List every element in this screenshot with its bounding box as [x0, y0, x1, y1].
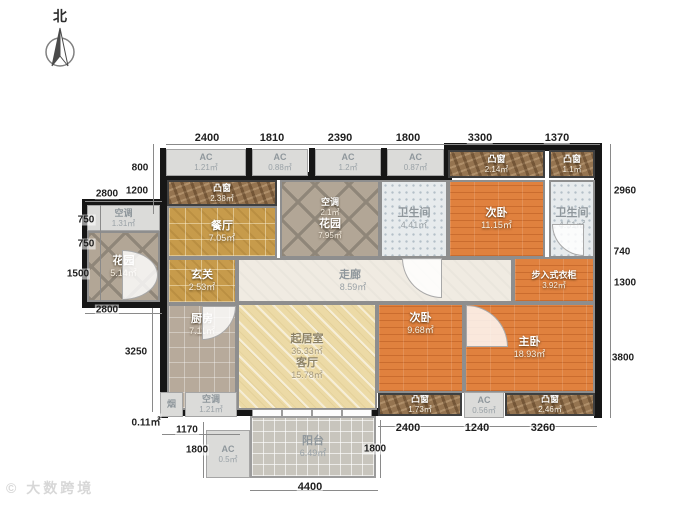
ac-unit-label: AC — [200, 152, 213, 163]
bay-window-label: 凸窗 — [411, 394, 429, 405]
room-closet-area: 3.92㎡ — [542, 281, 566, 291]
room-bedroom-2-area: 9.68㎡ — [407, 325, 434, 336]
dim-bottom-3260: 3260 — [530, 422, 556, 434]
ac-unit-label: AC — [342, 152, 355, 163]
dim-bottom-2400: 2400 — [395, 422, 421, 434]
room-entry: 玄关 2.53㎡ — [167, 258, 237, 304]
ac-unit-area: 1.2㎡ — [338, 163, 357, 173]
dim-left-800: 800 — [131, 163, 150, 174]
ac-unit: AC 0.87㎡ — [387, 149, 444, 176]
room-corridor-area: 8.59㎡ — [340, 282, 367, 293]
ac-unit: AC 0.5㎡ — [206, 430, 250, 478]
bay-window-label: 凸窗 — [541, 394, 559, 405]
bay-window-area: 1.73㎡ — [408, 405, 432, 415]
dim-top-5: 3300 — [467, 132, 493, 144]
bay-window-area: 2.38㎡ — [210, 194, 234, 204]
room-bedroom-2-label: 次卧 — [410, 312, 432, 325]
room-living-label-2: 客厅 — [296, 357, 318, 370]
room-bedroom-1-label: 次卧 — [486, 207, 508, 220]
room-corridor: 走廊 8.59㎡ — [237, 258, 513, 303]
room-garden-top-area: 7.95㎡ — [318, 231, 342, 241]
bay-window-label: 凸窗 — [487, 154, 505, 165]
dimension-line — [162, 434, 240, 435]
room-ac-bottom-label: 空调 — [202, 394, 220, 405]
room-closet: 步入式衣柜 3.92㎡ — [513, 257, 595, 303]
bay-window-label: 凸窗 — [213, 183, 231, 194]
watermark: © 大数跨境 — [6, 478, 94, 498]
ac-unit-area: 0.56㎡ — [472, 406, 496, 416]
room-dining: 餐厅 7.05㎡ — [167, 206, 277, 258]
dim-left-1800: 1800 — [185, 445, 209, 456]
dim-left-2800-top: 2800 — [95, 189, 119, 200]
bay-window-area: 2.46㎡ — [538, 405, 562, 415]
dim-top-4: 1800 — [395, 132, 421, 144]
room-bedroom-1: 次卧 11.15㎡ — [448, 180, 545, 258]
room-ac-left-label: 空调 — [114, 208, 132, 219]
room-bath-1-area: 4.41㎡ — [401, 220, 428, 231]
ac-unit-label: AC — [478, 395, 491, 406]
garden-ac-area: 2.1㎡ — [320, 208, 339, 218]
bay-window: 凸窗 2.38㎡ — [167, 180, 277, 206]
ac-unit: AC 1.2㎡ — [315, 149, 381, 176]
room-ac-bottom: 空调 1.21㎡ — [185, 392, 237, 417]
dimension-line — [85, 201, 162, 202]
bay-window-area: 2.14㎡ — [485, 165, 509, 175]
dimension-line — [610, 144, 611, 418]
room-bath-1-label: 卫生间 — [398, 207, 431, 220]
bay-window: 凸窗 2.14㎡ — [448, 150, 545, 178]
room-ac-left: 空调 1.31㎡ — [87, 205, 160, 231]
dim-top-2: 1810 — [259, 132, 285, 144]
room-corridor-label: 走廊 — [339, 269, 361, 282]
dim-bottom-1800: 1800 — [363, 444, 387, 455]
room-garden-top: 空调 2.1㎡ 花园 7.95㎡ — [280, 180, 380, 258]
room-bedroom-1-area: 11.15㎡ — [481, 220, 512, 231]
dim-top-3: 2390 — [327, 132, 353, 144]
room-closet-label: 步入式衣柜 — [531, 270, 576, 281]
dim-bottom-4400: 4400 — [297, 481, 323, 493]
garden-ac-label: 空调 — [321, 197, 339, 208]
room-ac-left-area: 1.31㎡ — [112, 219, 136, 229]
chimney-area-value: 0.11㎡ — [131, 414, 162, 429]
ac-unit-area: 0.88㎡ — [268, 163, 292, 173]
dim-top-6: 1370 — [544, 132, 570, 144]
room-bath-1: 卫生间 4.41㎡ — [380, 180, 448, 258]
dim-right-3800: 3800 — [611, 353, 635, 364]
room-master-area: 18.93㎡ — [514, 349, 546, 360]
room-master-label: 主卧 — [519, 336, 541, 349]
dimension-line — [166, 144, 600, 145]
dim-right-1300: 1300 — [613, 278, 637, 289]
room-ac-bottom-area: 1.21㎡ — [199, 405, 223, 415]
room-balcony-label: 阳台 — [302, 435, 324, 448]
room-living: 起居室 36.33㎡ 客厅 15.78㎡ — [237, 303, 377, 410]
dim-top-1: 2400 — [194, 132, 220, 144]
room-balcony-area: 6.49㎡ — [300, 448, 327, 459]
bay-window-label: 凸窗 — [563, 154, 581, 165]
room-dining-label: 餐厅 — [211, 220, 233, 233]
dim-left-1170: 1170 — [175, 425, 199, 436]
dim-left-750b: 750 — [77, 239, 96, 250]
ac-unit: AC 0.88㎡ — [252, 149, 308, 176]
ac-unit-area: 0.87㎡ — [404, 163, 428, 173]
dim-left-2800-bottom: 2800 — [95, 305, 119, 316]
dim-left-3250: 3250 — [124, 347, 148, 358]
ac-unit-area: 1.21㎡ — [194, 163, 218, 173]
dim-bottom-1240: 1240 — [464, 422, 490, 434]
dimension-line — [152, 308, 153, 412]
dimension-line — [153, 144, 154, 214]
sliding-door — [252, 409, 372, 417]
bay-window: 凸窗 1.1㎡ — [549, 150, 595, 178]
dim-left-750a: 750 — [77, 215, 96, 226]
room-garden-top-label: 花园 — [319, 218, 341, 231]
room-dining-area: 7.05㎡ — [209, 233, 236, 244]
ac-unit-label: AC — [274, 152, 287, 163]
ac-unit-area: 0.5㎡ — [218, 455, 237, 465]
room-chimney: 烟 — [160, 392, 183, 417]
room-bedroom-2: 次卧 9.68㎡ — [377, 303, 464, 393]
bay-window-area: 1.1㎡ — [562, 165, 581, 175]
ac-unit-label: AC — [409, 152, 422, 163]
north-label: 北 — [36, 6, 84, 26]
room-entry-label: 玄关 — [191, 269, 213, 282]
dimension-line — [100, 205, 101, 302]
room-balcony: 阳台 6.49㎡ — [250, 416, 376, 478]
dim-right-2960: 2960 — [613, 186, 637, 197]
north-compass: 北 — [36, 6, 84, 75]
room-chimney-label: 烟 — [167, 399, 176, 410]
ac-unit: AC 0.56㎡ — [464, 392, 504, 418]
dim-left-1200: 1200 — [125, 186, 149, 197]
floor-plan: 北 AC 1.21㎡ AC 0.88㎡ AC 1.2㎡ AC 0.87㎡ 凸窗 … — [0, 0, 700, 506]
ac-unit-label: AC — [222, 444, 235, 455]
room-entry-area: 2.53㎡ — [189, 282, 216, 293]
room-bath-2-label: 卫生间 — [556, 207, 589, 220]
north-arrow-icon — [39, 26, 81, 70]
room-living-area: 36.33㎡ — [291, 346, 323, 357]
room-living-label: 起居室 — [291, 333, 324, 346]
bay-window: 凸窗 1.73㎡ — [378, 393, 462, 416]
bay-window: 凸窗 2.46㎡ — [505, 393, 595, 416]
wall-segment — [594, 143, 602, 418]
dim-right-740: 740 — [613, 247, 632, 258]
ac-unit: AC 1.21㎡ — [166, 149, 246, 176]
dim-left-1500: 1500 — [66, 269, 90, 280]
room-living-area-2: 15.78㎡ — [291, 370, 323, 381]
